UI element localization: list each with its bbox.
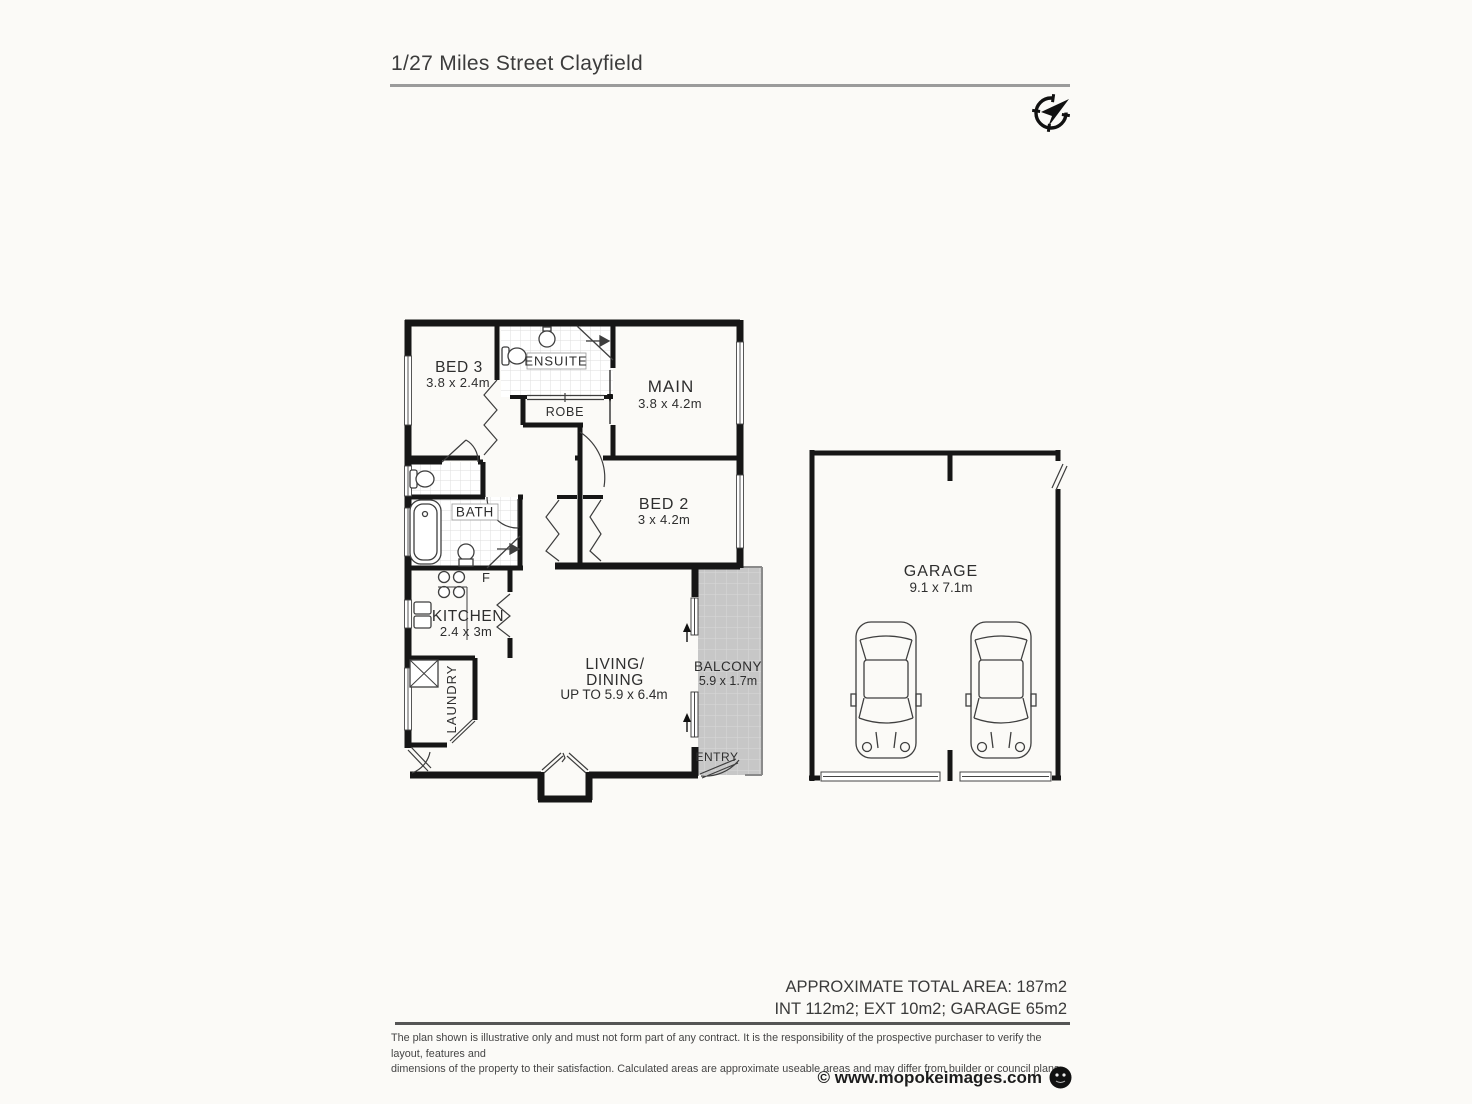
room-label-garage: GARAGE	[904, 563, 978, 580]
room-label-living-1: LIVING/	[585, 656, 644, 673]
car-icon	[851, 622, 921, 758]
credit-row: © www.mopokeimages.com	[600, 1066, 1072, 1089]
room-dims-garage: 9.1 x 7.1m	[909, 580, 972, 595]
garage-doors	[821, 772, 1051, 781]
window	[405, 356, 412, 425]
window	[737, 342, 744, 424]
disclaimer-line-1: The plan shown is illustrative only and …	[391, 1031, 1072, 1062]
area-summary: APPROXIMATE TOTAL AREA: 187m2 INT 112m2;…	[600, 976, 1067, 1021]
toilet-icon	[410, 470, 434, 488]
window	[405, 600, 412, 628]
window	[737, 475, 744, 548]
room-label-entry: ENTRY	[696, 750, 739, 764]
area-breakdown-text: INT 112m2; EXT 10m2; GARAGE 65m2	[600, 998, 1067, 1020]
car-icon	[966, 622, 1036, 758]
floor-plan-page: 1/27 Miles Street Clayfield	[0, 0, 1472, 1104]
bathtub-icon	[410, 500, 441, 564]
mopoke-logo-icon	[1049, 1066, 1072, 1089]
room-label-balcony: BALCONY	[694, 659, 762, 674]
room-label-bed3: BED 3	[435, 359, 483, 376]
bifold-door	[590, 500, 601, 561]
room-dims-main: 3.8 x 4.2m	[638, 396, 702, 411]
bifold-door	[546, 500, 559, 561]
fridge-label: F	[482, 570, 490, 585]
door-leaf	[1052, 464, 1067, 490]
room-dims-bed3: 3.8 x 2.4m	[426, 375, 490, 390]
room-label-kitchen: KITCHEN	[432, 608, 504, 625]
credit-url: © www.mopokeimages.com	[818, 1068, 1042, 1088]
room-label-main: MAIN	[648, 377, 695, 396]
sink-icon	[414, 602, 431, 628]
bifold-door	[484, 380, 497, 455]
floor-plan-drawing: BED 3 3.8 x 2.4m ENSUITE ROBE MAIN 3.8 x…	[0, 0, 1472, 1104]
room-dims-bed2: 3 x 4.2m	[638, 512, 690, 527]
stove-icon	[439, 572, 465, 598]
basin-icon	[458, 544, 474, 566]
basin-icon	[539, 331, 555, 347]
double-door	[542, 753, 588, 773]
room-dims-living: UP TO 5.9 x 6.4m	[560, 687, 667, 702]
washing-machine-icon	[410, 660, 438, 687]
room-label-robe: ROBE	[546, 405, 585, 419]
room-label-ensuite: ENSUITE	[524, 354, 587, 369]
room-dims-kitchen: 2.4 x 3m	[440, 624, 492, 639]
room-dims-balcony: 5.9 x 1.7m	[699, 674, 757, 688]
room-label-laundry: LAUNDRY	[444, 665, 459, 734]
room-label-bath: BATH	[456, 505, 494, 520]
door-leaf	[408, 747, 431, 773]
footer-divider	[395, 1022, 1070, 1025]
compass-icon	[1030, 92, 1073, 135]
toilet-icon	[502, 347, 526, 365]
door-arc	[580, 432, 605, 487]
room-label-bed2: BED 2	[639, 496, 689, 513]
total-area-text: APPROXIMATE TOTAL AREA: 187m2	[600, 976, 1067, 998]
